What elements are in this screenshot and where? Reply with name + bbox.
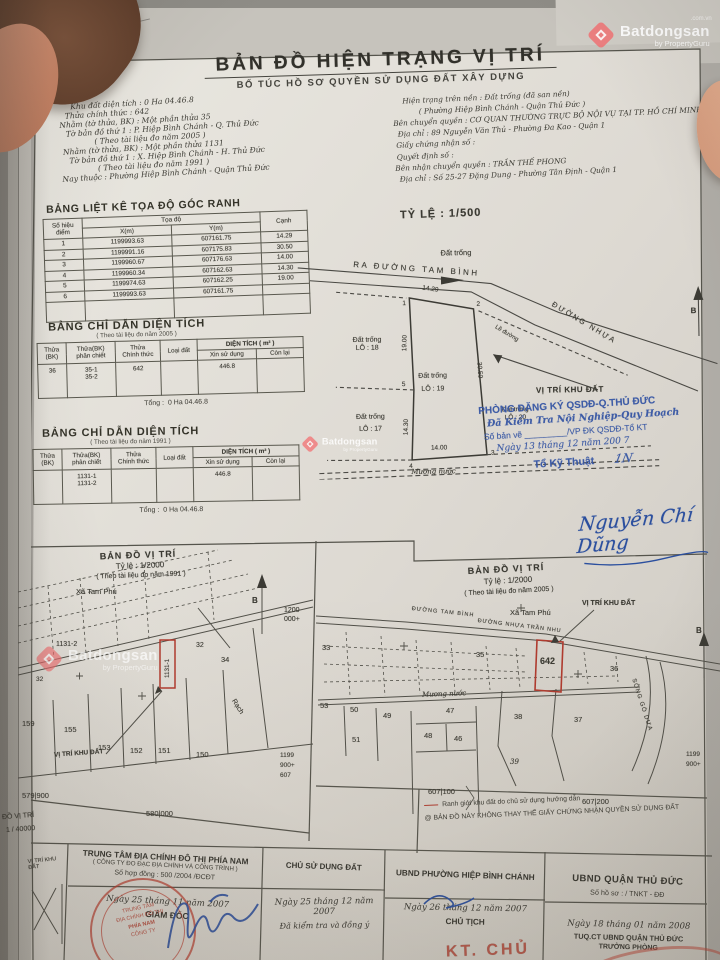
batdongsan-logo-icon	[36, 646, 62, 672]
coord-580-000: 580|000	[146, 810, 173, 819]
dim-right: 30.50	[475, 362, 484, 379]
v-land	[161, 360, 199, 395]
map-1991-north-label: B	[252, 596, 258, 605]
map-1991-grid-north: 1200000+	[284, 606, 300, 624]
parcel-150: 150	[196, 751, 209, 760]
h-land: Loại đất	[156, 447, 193, 469]
dim-bottom: 14.00	[431, 444, 447, 452]
h-bk: Thửa (BK)	[37, 343, 67, 365]
parcel-35: 35	[476, 651, 484, 660]
parcel-49: 49	[383, 712, 391, 721]
v-split: 1131-11131-2	[62, 469, 112, 504]
location-map-1991: BẢN ĐỒ VỊ TRÍ Tỷ lệ : 1/2000 ( Theo tài …	[18, 548, 314, 836]
lot-18-label: Đất trốngLÔ : 18	[337, 336, 397, 354]
parcel-38: 38	[514, 713, 522, 722]
v-use: 446.8	[193, 467, 253, 502]
watermark: Batdongsan by PropertyGuru	[302, 436, 377, 452]
area-table: Thửa (BK) Thửa(BK)phân chiết ThửaChính t…	[32, 444, 300, 505]
empty-land-label: Đất trống	[440, 249, 471, 258]
parcel-50: 50	[350, 706, 358, 715]
h-bk: Thửa (BK)	[33, 449, 62, 471]
location-map-2005: BẢN ĐỒ VỊ TRÍ Tỷ lệ : 1/2000 ( Theo tài …	[316, 556, 720, 816]
red-boundary-swatch-icon	[424, 804, 438, 806]
watermark-brand: Batdongsan	[68, 647, 158, 664]
coord-579-900: 579|900	[22, 792, 49, 801]
ward-stamp-text: KT. CHỦ	[446, 941, 531, 960]
batdongsan-logo-icon	[588, 22, 614, 48]
parcel-53: 53	[320, 702, 328, 711]
lot-17-label: Đất trốngLÔ : 17	[340, 411, 400, 436]
parcel-34: 34	[221, 656, 229, 665]
map-2005-area-name: Xã Tam Phú	[510, 609, 551, 618]
coord-607-100: 607|100	[428, 788, 455, 797]
v-land	[156, 468, 194, 503]
parcel-155: 155	[64, 726, 77, 735]
watermark-byline: by PropertyGuru	[68, 663, 158, 672]
batdongsan-logo-icon	[302, 436, 318, 452]
parcel-48: 48	[424, 732, 432, 741]
h-split: Thửa(BK)phân chiết	[62, 448, 111, 470]
h-land: Loại đất	[160, 339, 198, 361]
area-row: 36 35-135-2 642 446.8	[38, 358, 305, 399]
area-table-2005-block: BẢNG CHỈ DẪN DIỆN TÍCH ( Theo tài liệu đ…	[36, 315, 308, 410]
site-location-label: VỊ TRÍ KHU ĐẤT	[536, 385, 604, 396]
parcel-1131-1: 1131-1	[164, 659, 171, 678]
v-main: 642	[116, 361, 162, 396]
parcel-152: 152	[130, 747, 143, 756]
area-table-1991-block: BẢNG CHỈ DẪN DIỆN TÍCH ( Theo tài liệu đ…	[32, 423, 303, 516]
v-main	[111, 468, 157, 503]
v-rem	[252, 466, 300, 501]
grid-east-labels: 1199900+607	[280, 751, 295, 780]
h-main: ThửaChính thức	[111, 447, 156, 469]
parcel-47: 47	[446, 707, 454, 716]
v-bk: 36	[38, 364, 68, 399]
watermark-byline: by PropertyGuru	[620, 39, 710, 48]
director-signature	[150, 878, 270, 960]
parcel-159: 159	[22, 720, 35, 729]
v-use: 446.8	[198, 359, 258, 395]
map-1991-drawing	[18, 548, 314, 836]
watermark-byline: by PropertyGuru	[322, 446, 378, 452]
watermark-domain: .com.vn	[691, 16, 712, 22]
parcel-642: 642	[540, 656, 555, 667]
parcel-51: 51	[352, 736, 360, 745]
parcel-46: 46	[454, 735, 462, 744]
area-row: 1131-11131-2 446.8	[33, 466, 300, 505]
parcel-39: 39	[510, 758, 519, 766]
coordinate-table: Số hiệuđiểm Tọa độ Cạnh X(m) Y(m) 111999…	[43, 210, 311, 323]
ward-paraph	[418, 886, 478, 912]
watermark: Batdongsan by PropertyGuru	[36, 646, 158, 672]
dim-left-upper: 19.00	[401, 335, 409, 351]
map-1991-area-name: Xã Tam Phú	[76, 588, 117, 597]
area-table: Thửa (BK) Thửa(BK)phân chiết ThửaChính t…	[37, 336, 305, 399]
transfer-info-right: Hiện trạng trên nền : Đất trống (đã san …	[392, 81, 718, 184]
photo-of-document: BẢN ĐỒ HIỆN TRẠNG VỊ TRÍ BỐ TÚC HỒ SƠ QU…	[0, 0, 720, 960]
parcel-32a: 32	[196, 642, 204, 650]
road-direction-arrow	[441, 276, 464, 284]
parcel-33: 33	[322, 644, 330, 653]
v-split: 35-135-2	[67, 362, 117, 397]
parcel-32b: 32	[36, 676, 43, 684]
photo-left-edge-dark	[0, 56, 8, 960]
parcel-37: 37	[574, 716, 582, 725]
watermark-brand: Batdongsan	[322, 436, 378, 447]
dim-left-lower: 14.30	[403, 419, 411, 435]
north-label: B	[690, 306, 696, 316]
coordinate-table-block: BẢNG LIỆT KÊ TỌA ĐỘ GÓC RANH Số hiệuđiểm…	[42, 195, 312, 323]
parcel-151: 151	[158, 747, 171, 756]
v-bk	[33, 470, 63, 505]
corner-sketch	[28, 882, 68, 952]
land-user-date: Ngày 25 tháng 12 năm 2007	[263, 896, 385, 918]
grid-east-labels-2005: 1199900+	[686, 750, 701, 770]
parcel-36: 36	[610, 665, 618, 674]
land-user-sign-block: Ngày 25 tháng 12 năm 2007 Đã kiểm tra và…	[263, 896, 386, 931]
col-header-point: Số hiệuđiểm	[52, 221, 74, 236]
canal-label: Mương nước	[411, 467, 455, 476]
corner-2: 2	[476, 301, 480, 309]
stamp-initials: 1N	[613, 451, 634, 466]
watermark: .com.vn Batdongsan by PropertyGuru	[588, 22, 710, 48]
canal-muong-nuoc: Mương nước	[422, 689, 467, 699]
watermark-brand: Batdongsan	[620, 23, 710, 40]
lot-19-label: Đất trốngLÔ : 19	[398, 369, 468, 397]
corner-1: 1	[402, 300, 406, 308]
map-2005-site-label: VỊ TRÍ KHU ĐẤT	[582, 600, 635, 608]
h-split: Thửa(BK)phân chiết	[66, 341, 116, 363]
registry-approval-stamp: PHÒNG ĐĂNG KÝ QSDĐ-Q.THỦ ĐỨC Đã Kiểm Tra…	[478, 391, 720, 476]
h-main: ThửaChính thức	[115, 340, 161, 362]
map-2005-north-label: B	[696, 626, 702, 635]
